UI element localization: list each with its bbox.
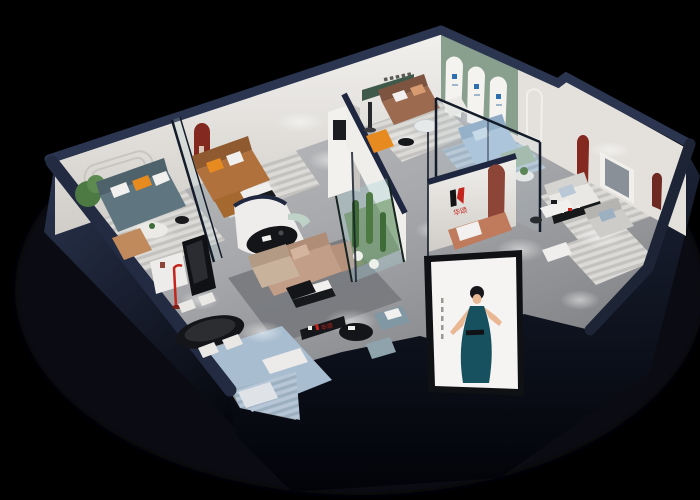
table-item <box>348 326 355 330</box>
light-pool <box>240 321 284 343</box>
panel-logo-mark <box>496 94 501 99</box>
caption-mark <box>441 334 444 339</box>
framed-art <box>333 120 347 140</box>
shelf-product <box>576 205 580 208</box>
black-side-table <box>398 138 414 146</box>
model-face <box>473 294 482 304</box>
caption-mark <box>441 316 444 321</box>
isometric-scene: 华颂 <box>0 0 700 500</box>
black-side-table <box>175 216 189 224</box>
table-plant <box>149 223 155 229</box>
white-flower-cluster <box>369 259 379 269</box>
caption-mark <box>441 307 444 312</box>
lettering-mark <box>390 76 394 80</box>
showroom-cutaway-render: 华颂 <box>0 0 700 500</box>
black-chair <box>530 217 542 224</box>
panel-logo-mark <box>474 84 479 89</box>
shelf-product <box>560 210 564 213</box>
statue-pedestal <box>364 128 376 133</box>
lettering-mark <box>384 77 388 81</box>
panel-caption <box>474 94 480 96</box>
panel-caption <box>452 84 458 86</box>
glass-round-table <box>414 120 438 133</box>
small-arch-niche <box>652 173 662 210</box>
panel-logo-mark <box>452 74 457 79</box>
dress-belt <box>466 330 484 336</box>
table-vase <box>279 231 284 236</box>
panel-caption <box>496 104 502 106</box>
cactus <box>380 212 386 252</box>
caption-mark <box>441 325 444 330</box>
caption-mark <box>441 298 444 303</box>
light-pool <box>560 290 600 310</box>
wall-spotlight <box>276 112 324 132</box>
wall-spotlight <box>590 142 630 158</box>
shelf-product-red <box>568 208 572 211</box>
shelf-decor <box>160 262 165 268</box>
table-setting <box>551 200 557 204</box>
statue <box>368 102 372 128</box>
lettering-mark <box>395 75 399 79</box>
round-display-table <box>339 323 373 341</box>
poster-lightbox <box>424 250 524 396</box>
shelf-product <box>308 326 312 330</box>
cactus <box>366 192 373 244</box>
